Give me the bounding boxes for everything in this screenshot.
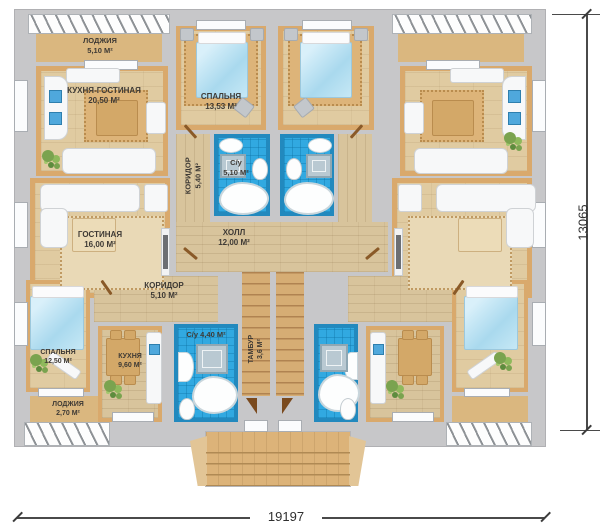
sink-icon [508,112,521,125]
window-east-1 [532,80,546,132]
armchair [146,102,166,134]
room-corridor-upper-right [338,134,372,224]
room-name: ХОЛЛ [184,228,284,238]
stove-icon [66,68,120,83]
sink-icon [49,112,62,125]
dimension-extension-top [552,14,600,15]
window-west-1 [14,80,28,132]
bed-pillows [466,286,518,298]
room-area: 2,70 М² [30,409,106,418]
plant-icon [104,380,116,392]
bed-pillows [302,32,350,44]
room-name: С/у [186,330,198,339]
room-area: 16,00 М² [40,240,160,250]
shower-tray [306,154,332,178]
room-area: 5,10 М² [116,291,212,301]
dimension-height-label: 13065 [576,187,591,259]
bathtub-icon [192,376,238,414]
label-tambour: ТАМБУР 3,6 М² [247,308,265,390]
window-kitchen-lower-right [392,412,434,422]
window-bedroom-lower-left [38,388,84,397]
toilet-icon [340,398,356,420]
porch-steps [206,452,350,486]
chair [110,330,122,340]
chair [402,330,414,340]
label-loggia-top-left: ЛОДЖИЯ 5,10 М² [50,36,150,56]
room-loggia-top-right [398,32,524,62]
tv-icon [394,228,403,276]
chair [124,330,136,340]
armchair [144,184,168,212]
bathtub-icon [284,182,334,215]
bed [30,296,84,350]
label-bathroom-upper: С/у 5,10 М² [212,158,260,178]
label-bedroom-top: СПАЛЬНЯ 13,53 М² [178,92,264,113]
shower-icon [178,352,194,382]
room-area: 12,00 М² [184,238,284,248]
window-kitchen-lower-left [112,412,154,422]
plant-icon [42,150,54,162]
room-name: КОРИДОР [183,135,193,217]
sink-icon [373,344,384,355]
room-area: 5,10 М² [212,168,260,178]
floor-plan: ЛОДЖИЯ 5,10 М² КУХНЯ-ГОСТИНАЯ 20,50 М² С… [0,0,600,530]
window-east-3 [532,302,546,346]
room-name: С/у [212,158,260,168]
bed-pillows [32,286,84,298]
table [458,218,502,252]
porch-side-wall-right [349,436,366,486]
chair [416,375,428,385]
room-name: КОРИДОР [116,281,212,291]
plant-icon [504,132,516,144]
chair [416,330,428,340]
nightstand [284,28,298,41]
armchair [398,184,422,212]
entrance-door-swing [246,398,257,414]
toilet-icon [286,158,302,180]
stove-icon [450,68,504,83]
room-area: 3,6 М² [256,308,265,390]
chair [124,375,136,385]
window-bedroom-lower-right [464,388,510,397]
room-area: 9,60 М² [98,361,162,370]
room-area: 13,53 М² [178,102,264,112]
window-west-3 [14,302,28,346]
sink-icon [508,90,521,103]
shower-tray [320,344,348,372]
nightstand [180,28,194,41]
label-corridor-upper: КОРИДОР 5,40 М² [183,135,203,217]
label-loggia-bottom-left: ЛОДЖИЯ 2,70 М² [30,400,106,418]
dining-table [398,338,432,376]
table [432,100,474,136]
plant-icon [386,380,398,392]
loggia-glazing-bottom-right [446,422,532,446]
label-kitchen-lower: КУХНЯ 9,60 М² [98,352,162,370]
toilet-icon [179,398,195,420]
label-kitchen-living: КУХНЯ-ГОСТИНАЯ 20,50 М² [48,86,160,107]
entrance-door-swing [282,398,293,414]
window-west-2 [14,202,28,248]
bed [300,42,352,98]
room-name: КУХНЯ [98,352,162,361]
label-living-room: ГОСТИНАЯ 16,00 М² [40,230,160,251]
bathtub-icon [219,182,269,215]
room-name: ТАМБУР [247,308,256,390]
sofa [414,148,508,174]
entrance-door-left [244,420,268,432]
room-name: ГОСТИНАЯ [40,230,160,240]
dimension-extension-bottom [560,430,600,431]
loggia-glazing-top-right [392,14,532,34]
room-name: СПАЛЬНЯ [26,348,90,357]
room-area: 5,40 М² [193,135,203,217]
label-hall: ХОЛЛ 12,00 М² [184,228,284,249]
stairs-right [276,272,304,396]
room-area: 20,50 М² [48,96,160,106]
dimension-width-label: 19197 [250,509,322,524]
porch-side-wall-left [190,436,207,486]
window-bedroom-top-right [302,20,352,30]
window-bedroom-top-left [196,20,246,30]
nightstand [354,28,368,41]
room-name: ЛОДЖИЯ [50,36,150,46]
bed [196,42,248,98]
tv-icon [161,228,170,276]
room-name: КУХНЯ-ГОСТИНАЯ [48,86,160,96]
shower-tray [196,344,228,374]
shower-icon [308,138,332,153]
loggia-glazing-bottom-left [24,422,110,446]
label-bathroom-lower: С/у 4,40 М² [174,330,238,340]
room-loggia-bottom-right [452,396,528,422]
label-bedroom-lower: СПАЛЬНЯ 12,50 М² [26,348,90,366]
armchair [404,102,424,134]
label-corridor-lower: КОРИДОР 5,10 М² [116,281,212,302]
bed [464,296,518,350]
kitchen-counter-right [502,76,526,140]
chair [402,375,414,385]
kitchen-counter [370,332,386,404]
bed-pillows [198,32,246,44]
entrance-door-right [278,420,302,432]
room-name: ЛОДЖИЯ [30,400,106,409]
room-name: СПАЛЬНЯ [178,92,264,102]
room-area: 5,10 М² [50,46,150,56]
shower-icon [219,138,243,153]
room-area: 12,50 М² [26,357,90,366]
sofa [62,148,156,174]
sofa [506,208,534,248]
nightstand [250,28,264,41]
loggia-glazing-top-left [28,14,170,34]
plant-icon [494,352,506,364]
room-area: 4,40 М² [200,330,225,339]
